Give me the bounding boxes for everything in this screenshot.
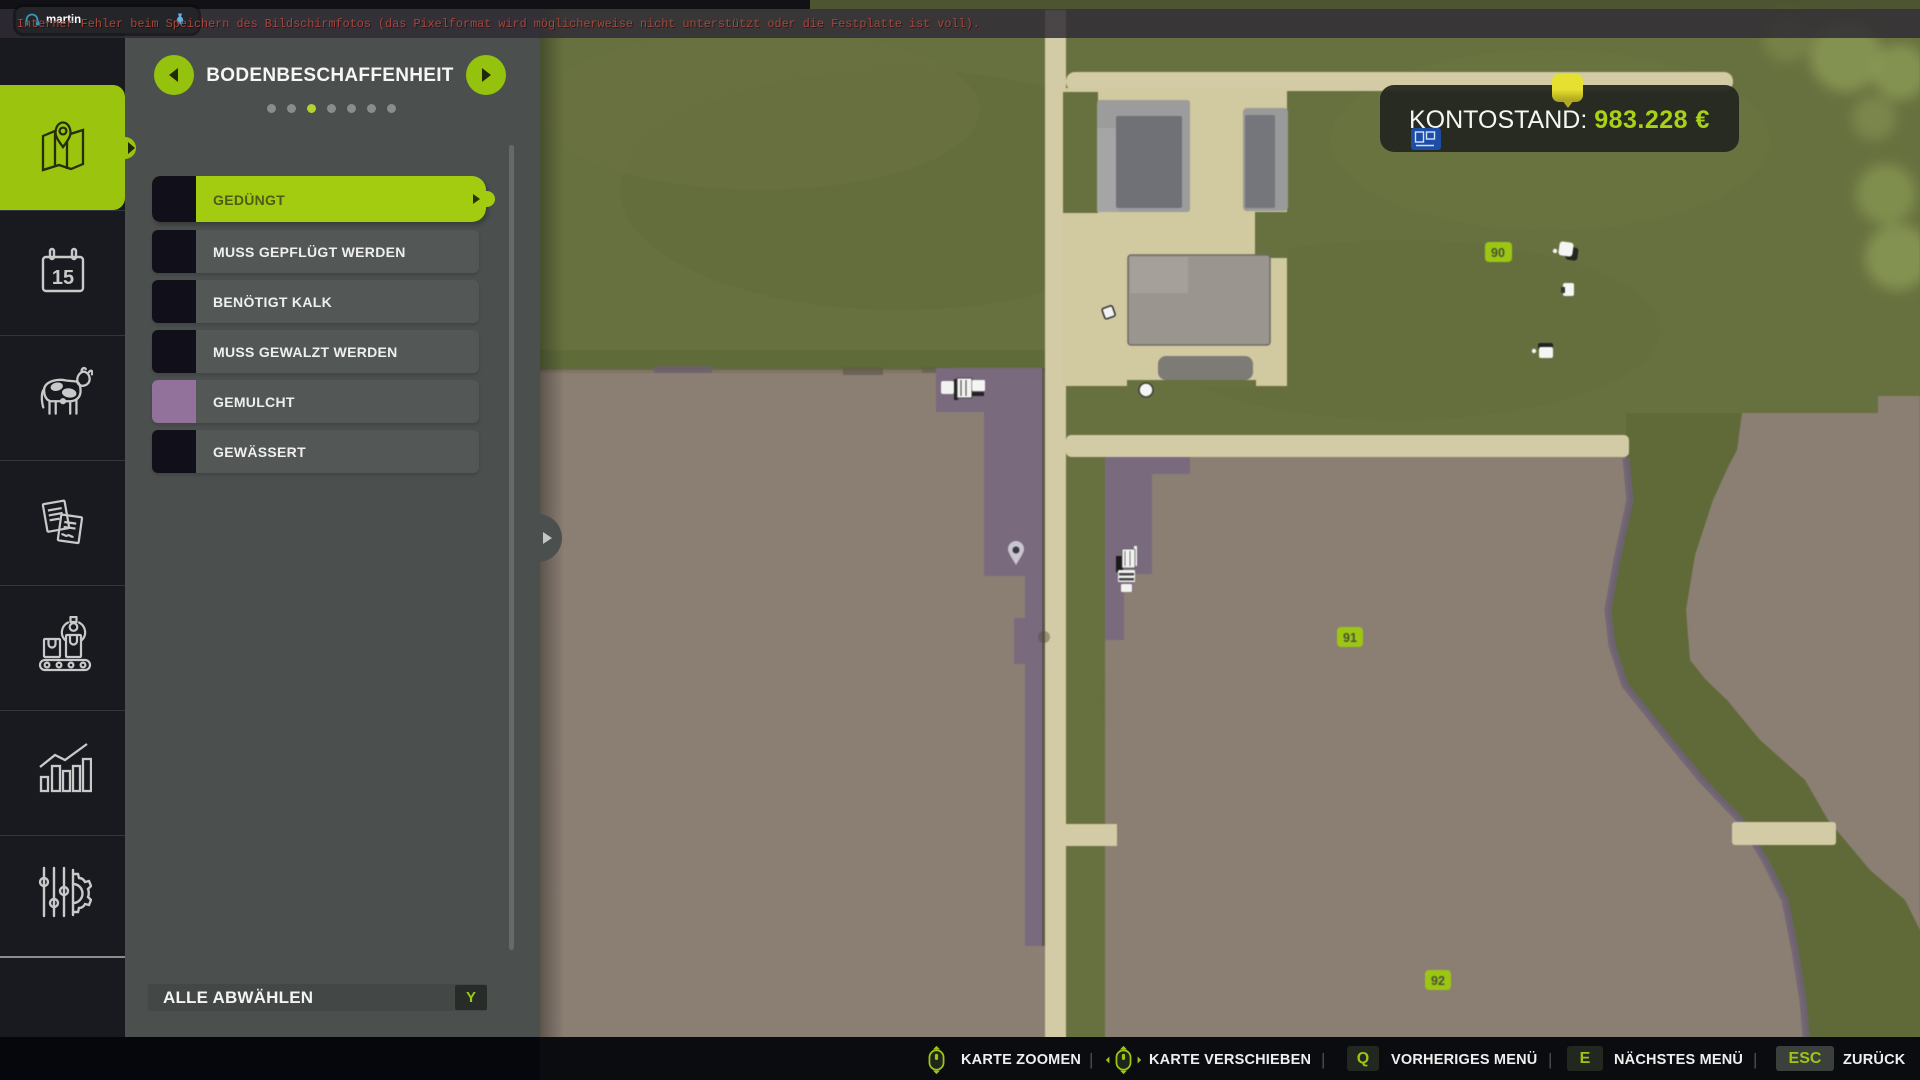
svg-text:91: 91 <box>1343 631 1357 645</box>
svg-text:15: 15 <box>52 267 74 289</box>
svg-text:92: 92 <box>1431 974 1445 988</box>
svg-text:90: 90 <box>1491 246 1505 260</box>
